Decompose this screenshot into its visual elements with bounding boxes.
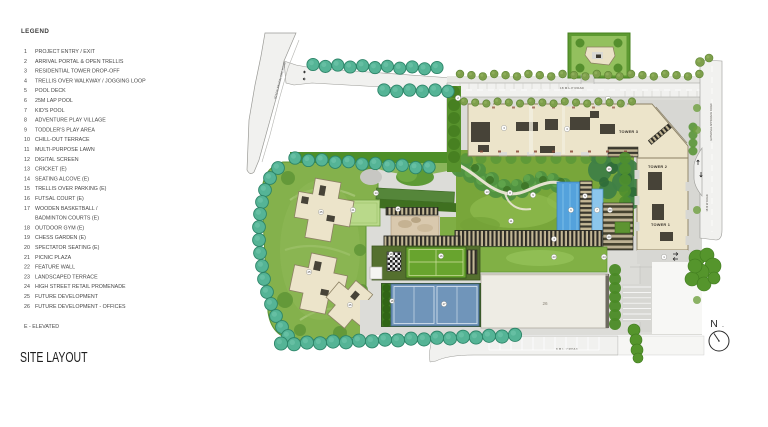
svg-text:11: 11: [24, 147, 30, 153]
svg-text:PICNIC PLAZA: PICNIC PLAZA: [35, 255, 72, 261]
svg-text:POOL DECK: POOL DECK: [35, 88, 66, 94]
svg-text:4: 4: [24, 78, 27, 84]
svg-text:LEGEND: LEGEND: [21, 28, 49, 35]
svg-text:1: 1: [24, 49, 27, 55]
svg-text:7: 7: [24, 108, 27, 114]
svg-text:23: 23: [24, 274, 30, 280]
svg-text:20: 20: [607, 235, 611, 239]
svg-text:20: 20: [608, 208, 612, 212]
svg-text:PROJECT ENTRY / EXIT: PROJECT ENTRY / EXIT: [35, 49, 96, 55]
svg-text:24: 24: [602, 255, 606, 259]
svg-text:19: 19: [24, 235, 30, 241]
svg-text:23: 23: [552, 255, 556, 259]
svg-text:16: 16: [24, 196, 30, 202]
svg-text:25: 25: [319, 210, 323, 214]
svg-text:TOWER 3: TOWER 3: [619, 129, 639, 134]
svg-text:E - ELEVATED: E - ELEVATED: [24, 324, 59, 330]
svg-text:FUTURE DEVELOPMENT - OFFICES: FUTURE DEVELOPMENT - OFFICES: [35, 304, 126, 310]
svg-text:18: 18: [24, 225, 30, 231]
svg-text:FUTSAL COURT (E): FUTSAL COURT (E): [35, 196, 84, 202]
svg-text:26: 26: [542, 301, 548, 306]
svg-text:18 M L.P ROAD: 18 M L.P ROAD: [560, 86, 585, 90]
svg-text:11: 11: [510, 219, 513, 223]
svg-text:MULTI-PURPOSE LAWN: MULTI-PURPOSE LAWN: [35, 147, 95, 153]
svg-text:N: N: [710, 318, 718, 330]
svg-text:13: 13: [485, 190, 489, 194]
svg-text:22: 22: [24, 265, 30, 271]
svg-text:10: 10: [24, 137, 30, 143]
svg-text:6: 6: [24, 98, 27, 104]
svg-text:5: 5: [24, 88, 27, 94]
svg-text:9 M L.P ROAD: 9 M L.P ROAD: [556, 347, 579, 351]
svg-text:3: 3: [24, 69, 27, 75]
svg-text:ADVENTURE PLAY VILLAGE: ADVENTURE PLAY VILLAGE: [35, 118, 106, 124]
svg-text:26: 26: [24, 304, 30, 310]
svg-text:DIGITAL SCREEN: DIGITAL SCREEN: [35, 157, 79, 163]
svg-text:EXTERNAL APPROACH ROAD: EXTERNAL APPROACH ROAD: [709, 103, 713, 140]
svg-text:TODDLER'S PLAY AREA: TODDLER'S PLAY AREA: [35, 127, 95, 133]
svg-text:LANDSCAPED TERRACE: LANDSCAPED TERRACE: [35, 274, 98, 280]
svg-text:17: 17: [24, 206, 30, 212]
svg-text:WOODEN BASKETBALL /: WOODEN BASKETBALL /: [35, 206, 98, 212]
svg-text:18: 18: [390, 299, 394, 303]
svg-text:12: 12: [24, 157, 30, 163]
svg-text:FEATURE WALL: FEATURE WALL: [35, 265, 75, 271]
svg-text:25M LAP POOL: 25M LAP POOL: [35, 98, 73, 104]
svg-text:15: 15: [396, 207, 400, 211]
svg-text:25: 25: [348, 303, 352, 307]
svg-text:25: 25: [307, 270, 311, 274]
svg-text:21: 21: [351, 208, 355, 212]
svg-text:FUTURE DEVELOPMENT: FUTURE DEVELOPMENT: [35, 294, 99, 300]
svg-text:CHESS GARDEN (E): CHESS GARDEN (E): [35, 235, 86, 241]
svg-text:17: 17: [442, 302, 446, 306]
svg-text:KID'S POOL: KID'S POOL: [35, 108, 65, 114]
svg-text:13: 13: [24, 167, 30, 173]
svg-text:TOWER 1: TOWER 1: [651, 222, 671, 227]
svg-text:RESIDENTIAL TOWER DROP-OFF: RESIDENTIAL TOWER DROP-OFF: [35, 69, 120, 75]
svg-text:CRICKET (E): CRICKET (E): [35, 167, 67, 173]
svg-text:14: 14: [24, 176, 30, 182]
svg-text:15: 15: [24, 186, 30, 192]
svg-text:19: 19: [389, 252, 393, 256]
svg-text:HIGH STREET RETAIL PROMENADE: HIGH STREET RETAIL PROMENADE: [35, 284, 126, 290]
svg-text:16: 16: [439, 254, 443, 258]
svg-text:20: 20: [24, 245, 30, 251]
svg-text:25: 25: [24, 294, 30, 300]
svg-text:TRELLIS OVER WALKWAY / JOGGING: TRELLIS OVER WALKWAY / JOGGING LOOP: [35, 78, 146, 84]
svg-text:24: 24: [24, 284, 30, 290]
svg-text:.: .: [722, 322, 724, 329]
svg-text:ARRIVAL PORTAL & OPEN TRELLIS: ARRIVAL PORTAL & OPEN TRELLIS: [35, 59, 124, 65]
svg-text:BADMINTON COURTS (E): BADMINTON COURTS (E): [35, 216, 99, 222]
svg-text:SITE LAYOUT: SITE LAYOUT: [20, 348, 88, 365]
svg-text:CHILL-OUT TERRACE: CHILL-OUT TERRACE: [35, 137, 90, 143]
svg-text:SPECTATOR SEATING (E): SPECTATOR SEATING (E): [35, 245, 100, 251]
svg-text:14: 14: [374, 191, 378, 195]
svg-text:18 M W ROAD: 18 M W ROAD: [705, 194, 709, 211]
svg-text:TOWER 2: TOWER 2: [648, 164, 668, 169]
svg-text:OUTDOOR GYM (E): OUTDOOR GYM (E): [35, 225, 84, 231]
svg-text:SEATING ALCOVE (E): SEATING ALCOVE (E): [35, 176, 89, 182]
svg-text:10: 10: [607, 167, 611, 171]
svg-text:21: 21: [24, 255, 30, 261]
svg-text:9: 9: [24, 127, 27, 133]
svg-text:TRELLIS OVER PARKING (E): TRELLIS OVER PARKING (E): [35, 186, 107, 192]
svg-text:8: 8: [24, 118, 27, 124]
svg-text:2: 2: [24, 59, 27, 65]
